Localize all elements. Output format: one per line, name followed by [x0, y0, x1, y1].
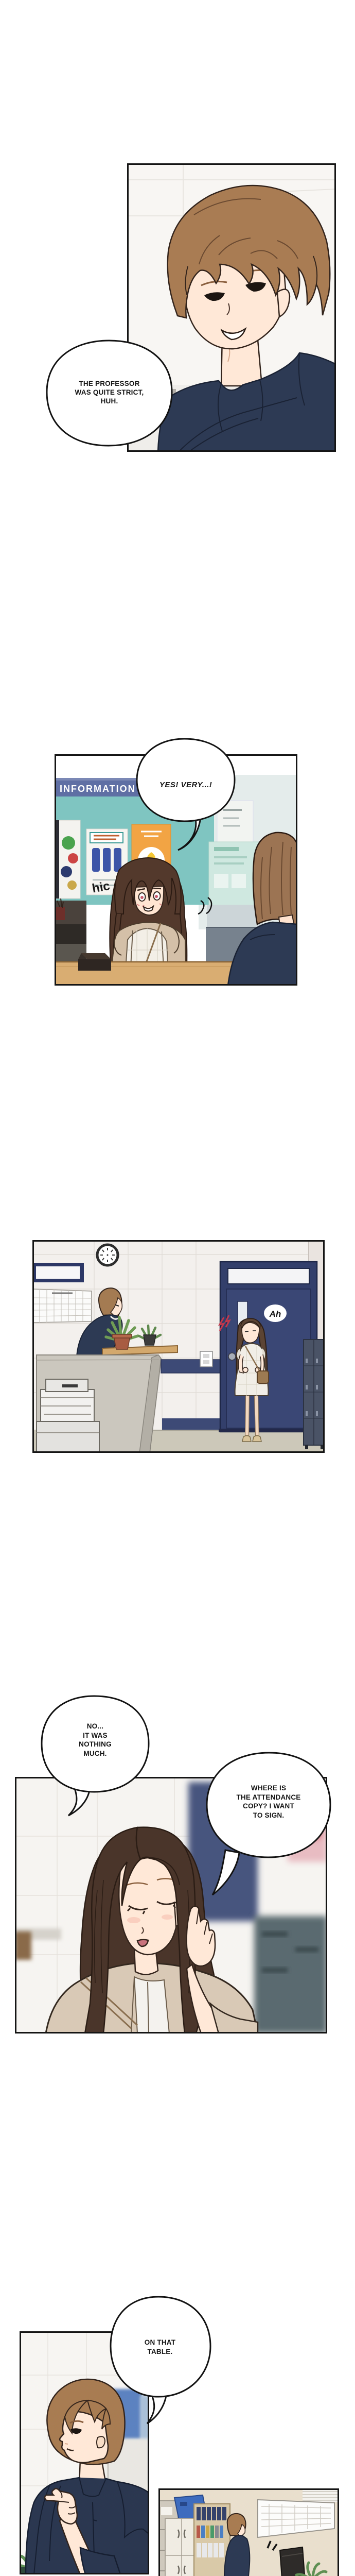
svg-text:Ah: Ah	[269, 1309, 281, 1319]
svg-text:YES! VERY...!: YES! VERY...!	[159, 781, 212, 789]
